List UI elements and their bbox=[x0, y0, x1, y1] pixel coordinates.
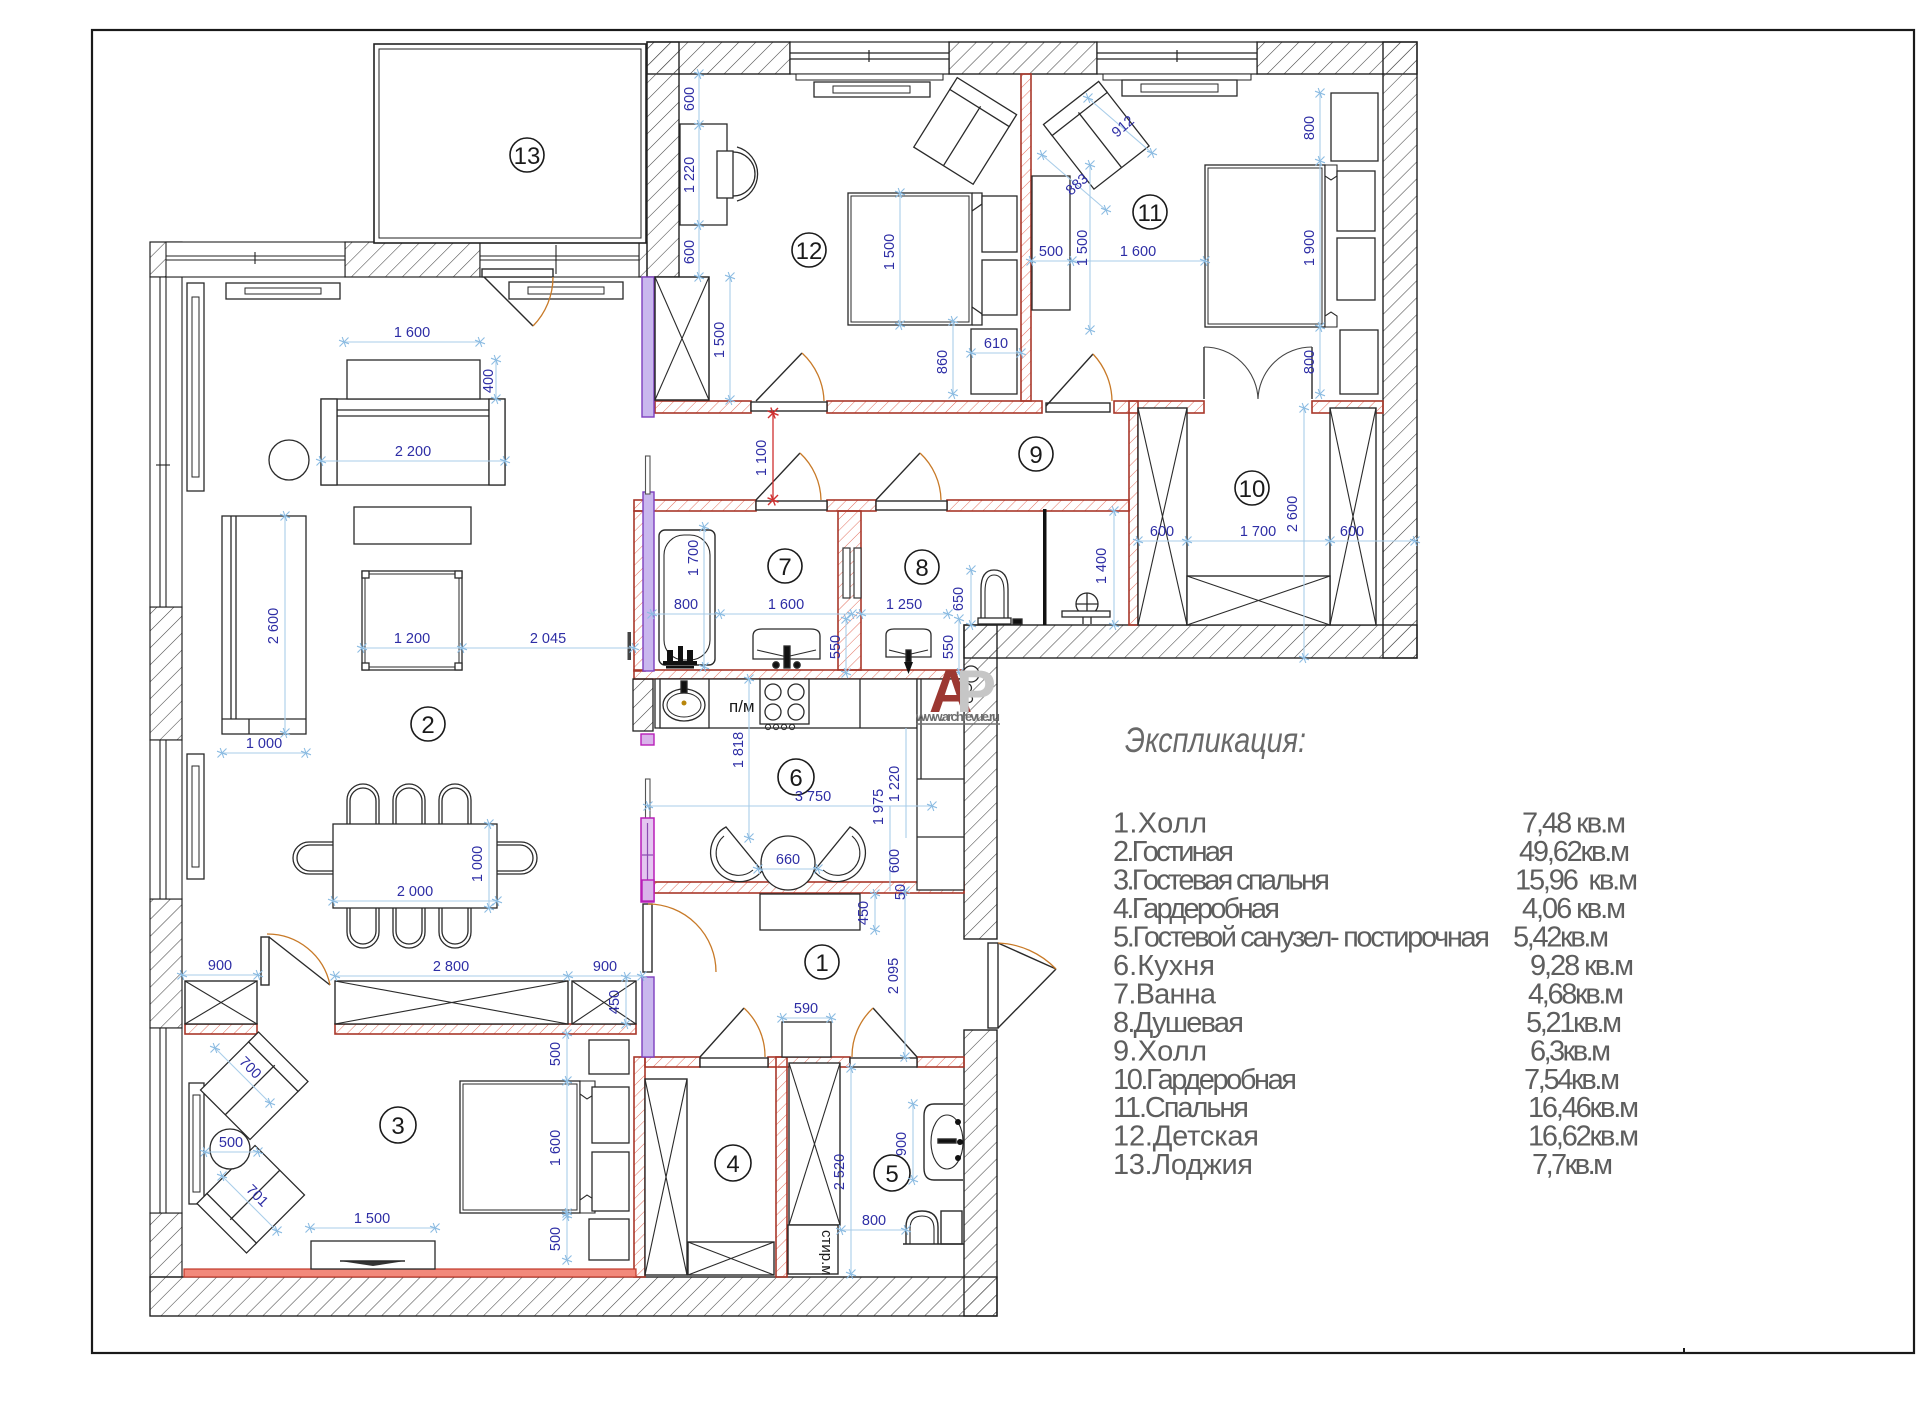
svg-text:50: 50 bbox=[893, 884, 909, 900]
svg-text:400: 400 bbox=[481, 369, 497, 393]
svg-text:16,62кв.м: 16,62кв.м bbox=[1528, 1121, 1639, 1153]
svg-text:15,96 кв.м: 15,96 кв.м bbox=[1515, 865, 1638, 897]
svg-text:610: 610 bbox=[984, 336, 1008, 352]
svg-text:7: 7 bbox=[778, 554, 791, 581]
svg-text:1 500: 1 500 bbox=[882, 234, 898, 270]
svg-text:10: 10 bbox=[1239, 476, 1266, 503]
svg-text:3: 3 bbox=[391, 1113, 404, 1140]
svg-text:600: 600 bbox=[1340, 524, 1364, 540]
svg-text:660: 660 bbox=[776, 852, 800, 868]
svg-text:1 500: 1 500 bbox=[354, 1211, 390, 1227]
svg-text:800: 800 bbox=[862, 1213, 886, 1229]
svg-text:п/м: п/м bbox=[729, 697, 755, 716]
svg-text:1 900: 1 900 bbox=[1302, 230, 1318, 266]
svg-text:2 600: 2 600 bbox=[1285, 496, 1301, 532]
svg-text:6: 6 bbox=[789, 765, 802, 792]
svg-text:9.Холл: 9.Холл bbox=[1113, 1035, 1207, 1067]
svg-text:3.Гостевая спальня: 3.Гостевая спальня bbox=[1113, 865, 1330, 897]
svg-text:550: 550 bbox=[828, 635, 844, 659]
svg-text:4.Гардеробная: 4.Гардеробная bbox=[1113, 893, 1280, 925]
svg-text:1 250: 1 250 bbox=[886, 597, 922, 613]
svg-text:1 220: 1 220 bbox=[887, 766, 903, 802]
svg-text:2 600: 2 600 bbox=[266, 608, 282, 644]
svg-text:2 000: 2 000 bbox=[397, 884, 433, 900]
svg-text:9: 9 bbox=[1029, 442, 1042, 469]
svg-text:900: 900 bbox=[894, 1132, 910, 1156]
svg-text:450: 450 bbox=[607, 990, 623, 1014]
svg-text:1 818: 1 818 bbox=[731, 732, 747, 768]
svg-text:600: 600 bbox=[1150, 524, 1174, 540]
svg-text:1 000: 1 000 bbox=[246, 736, 282, 752]
svg-text:800: 800 bbox=[1302, 116, 1318, 140]
svg-text:5,21кв.м: 5,21кв.м bbox=[1526, 1007, 1622, 1039]
svg-text:2 200: 2 200 bbox=[395, 444, 431, 460]
svg-text:900: 900 bbox=[593, 959, 617, 975]
svg-text:2 520: 2 520 bbox=[832, 1154, 848, 1190]
svg-text:1 975: 1 975 bbox=[871, 789, 887, 825]
svg-text:450: 450 bbox=[856, 901, 872, 925]
svg-text:4,06 кв.м: 4,06 кв.м bbox=[1522, 893, 1626, 925]
svg-text:650: 650 bbox=[951, 587, 967, 611]
svg-text:860: 860 bbox=[935, 350, 951, 374]
svg-text:6.Кухня: 6.Кухня bbox=[1113, 950, 1215, 982]
svg-text:500: 500 bbox=[219, 1135, 243, 1151]
svg-text:590: 590 bbox=[794, 1001, 818, 1017]
svg-text:2 095: 2 095 bbox=[886, 958, 902, 994]
svg-text:8: 8 bbox=[915, 555, 928, 582]
svg-text:2: 2 bbox=[421, 712, 434, 739]
svg-text:www.archrevue.ru: www.archrevue.ru bbox=[915, 709, 1000, 724]
svg-text:1.Холл: 1.Холл bbox=[1113, 808, 1207, 840]
svg-text:550: 550 bbox=[941, 635, 957, 659]
svg-text:2 800: 2 800 bbox=[433, 959, 469, 975]
svg-text:1 700: 1 700 bbox=[1240, 524, 1276, 540]
svg-text:2.Гостиная: 2.Гостиная bbox=[1113, 836, 1234, 868]
svg-text:6,3кв.м: 6,3кв.м bbox=[1530, 1035, 1611, 1067]
svg-text:9,28 кв.м: 9,28 кв.м bbox=[1530, 950, 1634, 982]
svg-text:800: 800 bbox=[1302, 350, 1318, 374]
svg-text:1: 1 bbox=[815, 950, 828, 977]
svg-text:10.Гардеробная: 10.Гардеробная bbox=[1113, 1064, 1297, 1096]
svg-text:500: 500 bbox=[548, 1227, 564, 1251]
svg-text:13.Лоджия: 13.Лоджия bbox=[1113, 1149, 1253, 1181]
svg-text:8.Душевая: 8.Душевая bbox=[1113, 1007, 1244, 1039]
svg-text:1 200: 1 200 bbox=[394, 631, 430, 647]
svg-text:5: 5 bbox=[885, 1161, 898, 1188]
svg-text:7,54кв.м: 7,54кв.м bbox=[1524, 1064, 1620, 1096]
svg-text:1 600: 1 600 bbox=[394, 325, 430, 341]
svg-text:5,42кв.м: 5,42кв.м bbox=[1513, 922, 1609, 954]
svg-text:1 100: 1 100 bbox=[754, 440, 770, 476]
svg-text:1 500: 1 500 bbox=[1075, 230, 1091, 266]
svg-text:Экспликация:: Экспликация: bbox=[1125, 721, 1306, 760]
svg-text:500: 500 bbox=[548, 1042, 564, 1066]
svg-text:4: 4 bbox=[726, 1151, 739, 1178]
svg-text:1 700: 1 700 bbox=[686, 540, 702, 576]
svg-text:13: 13 bbox=[514, 143, 541, 170]
svg-text:7.Ванна: 7.Ванна bbox=[1113, 978, 1217, 1010]
svg-text:800: 800 bbox=[674, 597, 698, 613]
svg-text:12.Детская: 12.Детская bbox=[1113, 1121, 1259, 1153]
svg-text:4,68кв.м: 4,68кв.м bbox=[1528, 978, 1624, 1010]
svg-text:1 220: 1 220 bbox=[682, 157, 698, 193]
svg-text:7,7кв.м: 7,7кв.м bbox=[1532, 1149, 1613, 1181]
svg-text:500: 500 bbox=[1039, 244, 1063, 260]
svg-text:1 600: 1 600 bbox=[548, 1130, 564, 1166]
svg-text:16,46кв.м: 16,46кв.м bbox=[1528, 1092, 1639, 1124]
svg-text:1 600: 1 600 bbox=[768, 597, 804, 613]
svg-text:49,62кв.м: 49,62кв.м bbox=[1519, 836, 1630, 868]
svg-text:900: 900 bbox=[208, 958, 232, 974]
svg-text:600: 600 bbox=[682, 87, 698, 111]
svg-text:1 400: 1 400 bbox=[1094, 548, 1110, 584]
svg-text:11: 11 bbox=[1138, 200, 1163, 227]
svg-text:600: 600 bbox=[682, 240, 698, 264]
svg-text:2 045: 2 045 bbox=[530, 631, 566, 647]
svg-text:1 000: 1 000 bbox=[470, 846, 486, 882]
svg-text:5.Гостевой санузел- постирочна: 5.Гостевой санузел- постирочная bbox=[1113, 922, 1490, 954]
svg-text:12: 12 bbox=[796, 238, 823, 265]
svg-text:7,48 кв.м: 7,48 кв.м bbox=[1522, 808, 1626, 840]
svg-text:600: 600 bbox=[887, 849, 903, 873]
svg-text:1 500: 1 500 bbox=[712, 322, 728, 358]
svg-text:11.Спальня: 11.Спальня bbox=[1113, 1092, 1249, 1124]
svg-text:3 750: 3 750 bbox=[795, 789, 831, 805]
svg-text:1 600: 1 600 bbox=[1120, 244, 1156, 260]
svg-text:стир.м: стир.м bbox=[818, 1230, 835, 1276]
